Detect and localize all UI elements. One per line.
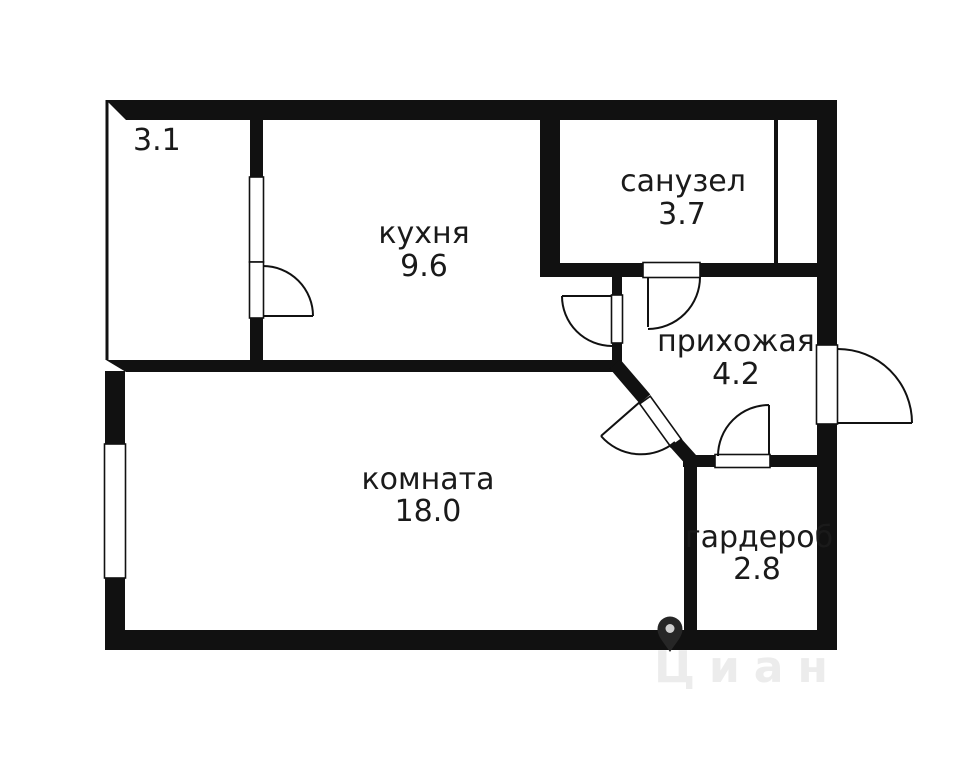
- wardrobe-door-swing: [718, 405, 769, 456]
- wall-kitchen-room: [106, 360, 622, 372]
- hallway-area-label: 4.2: [712, 357, 760, 392]
- entrance-door-swing: [838, 349, 912, 423]
- room-area-label: 18.0: [395, 494, 462, 529]
- wall-bathroom-bottom-right: [700, 263, 837, 277]
- room-labels: 3.1 кухня 9.6 санузел 3.7 прихожая 4.2 к…: [133, 123, 833, 587]
- wall-balcony-divider-upper: [250, 120, 263, 177]
- wall-bathroom-left: [540, 120, 560, 263]
- wall-balcony-divider-lower: [250, 318, 263, 361]
- kitchen-door-swing: [562, 296, 612, 346]
- wall-hallway-kitchen-upper: [612, 276, 622, 295]
- wall-left-upper: [105, 371, 125, 445]
- hallway-name-label: прихожая: [657, 324, 815, 359]
- wardrobe-area-label: 2.8: [733, 552, 781, 587]
- wall-left-lower: [105, 577, 125, 632]
- balcony-window: [250, 177, 264, 262]
- room-name-label: комната: [362, 462, 495, 497]
- bathroom-name-label: санузел: [620, 164, 746, 199]
- watermark-text: Циан: [654, 642, 842, 693]
- bathroom-door-opening: [643, 263, 700, 278]
- room-door-opening: [640, 396, 682, 447]
- wall-wardrobe-top-right: [770, 455, 837, 467]
- balcony-area-label: 3.1: [133, 123, 181, 158]
- entrance-door-opening: [817, 345, 838, 424]
- kitchen-name-label: кухня: [378, 216, 469, 251]
- watermark: Циан: [654, 617, 842, 694]
- kitchen-door-opening: [612, 295, 623, 343]
- room-window: [105, 444, 126, 578]
- wardrobe-door-opening: [715, 455, 770, 468]
- floor-plan-image: 3.1 кухня 9.6 санузел 3.7 прихожая 4.2 к…: [0, 0, 954, 783]
- wall-top: [106, 100, 837, 120]
- wall-diagonal-lower: [675, 442, 692, 461]
- map-pin-hole: [666, 624, 675, 633]
- balcony-door-swing: [263, 266, 313, 316]
- kitchen-area-label: 9.6: [400, 249, 448, 284]
- bathroom-area-label: 3.7: [658, 197, 706, 232]
- wall-diagonal-upper: [615, 364, 645, 399]
- balcony-door-opening: [250, 262, 264, 318]
- bathroom-door-swing: [648, 277, 700, 329]
- wall-bathroom-bottom-left: [540, 263, 643, 277]
- wardrobe-name-label: гардероб: [685, 520, 833, 555]
- wall-right-upper: [817, 120, 837, 345]
- floor-plan-svg: 3.1 кухня 9.6 санузел 3.7 прихожая 4.2 к…: [0, 0, 954, 783]
